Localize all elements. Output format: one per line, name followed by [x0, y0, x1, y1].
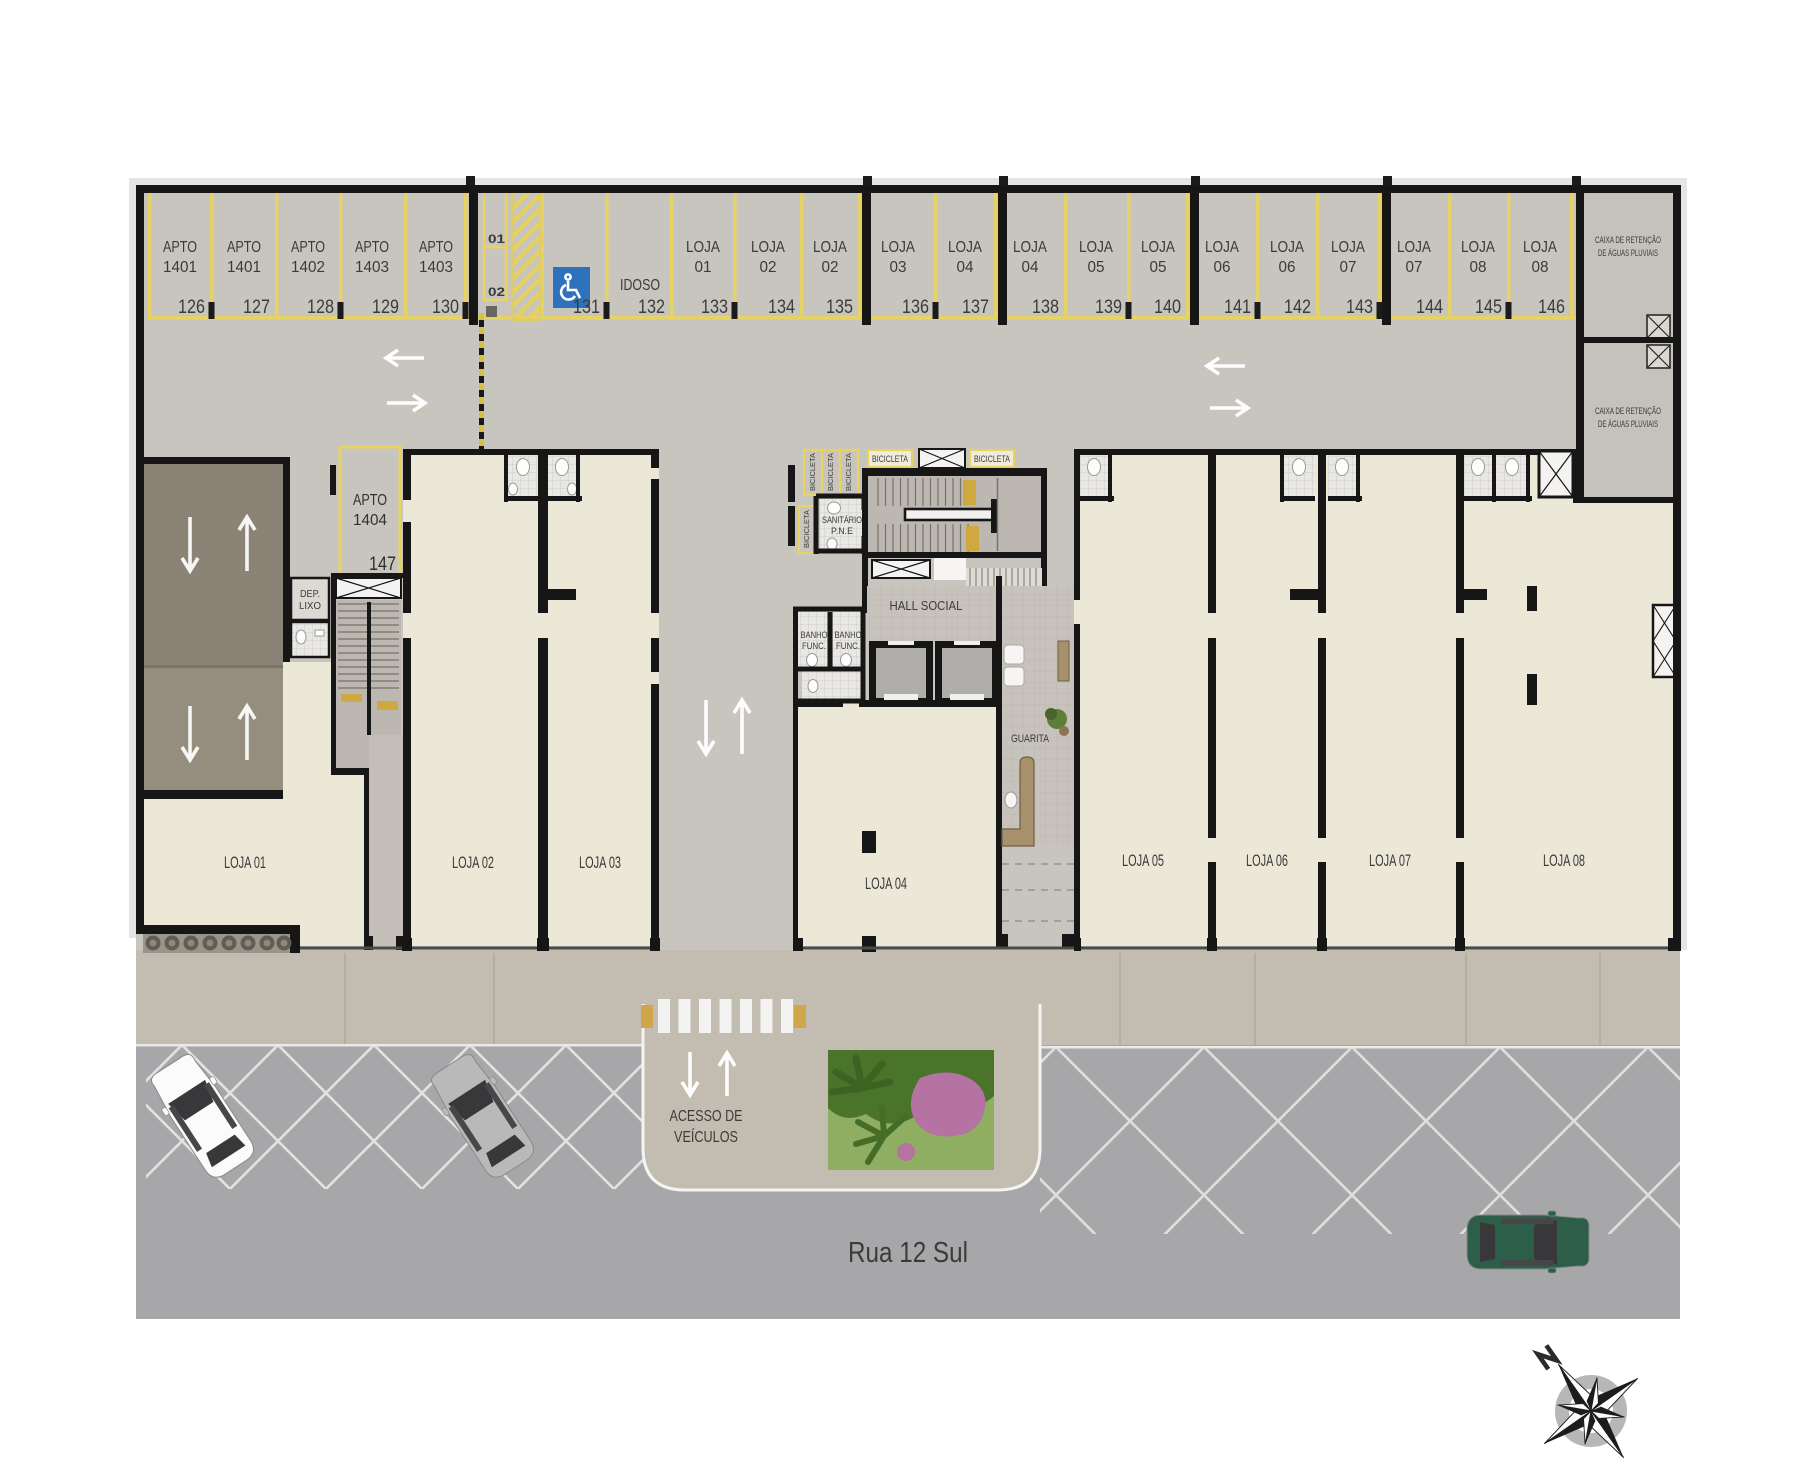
- svg-text:138: 138: [1032, 297, 1059, 318]
- svg-text:134: 134: [768, 297, 795, 318]
- svg-text:BICICLETA: BICICLETA: [872, 454, 908, 464]
- svg-text:127: 127: [243, 297, 270, 318]
- svg-text:05: 05: [1088, 259, 1105, 276]
- svg-text:LOJA 01: LOJA 01: [224, 853, 266, 872]
- svg-text:01: 01: [488, 234, 506, 246]
- svg-text:LOJA: LOJA: [1013, 239, 1047, 256]
- svg-text:01: 01: [695, 259, 712, 276]
- svg-text:APTO: APTO: [227, 239, 261, 256]
- svg-text:145: 145: [1475, 297, 1502, 318]
- svg-text:BANHO: BANHO: [801, 630, 828, 641]
- svg-text:05: 05: [1150, 259, 1167, 276]
- svg-text:APTO: APTO: [291, 239, 325, 256]
- svg-text:132: 132: [638, 297, 665, 318]
- svg-text:FUNC.: FUNC.: [802, 641, 826, 652]
- svg-text:140: 140: [1154, 297, 1181, 318]
- svg-text:1403: 1403: [355, 259, 389, 276]
- svg-text:144: 144: [1416, 297, 1443, 318]
- svg-text:07: 07: [1340, 259, 1357, 276]
- svg-text:1403: 1403: [419, 259, 453, 276]
- svg-text:DE ÁGUAS PLUVIAIS: DE ÁGUAS PLUVIAIS: [1598, 248, 1658, 259]
- svg-text:LOJA 07: LOJA 07: [1369, 851, 1411, 870]
- svg-text:08: 08: [1470, 259, 1487, 276]
- svg-text:141: 141: [1224, 297, 1251, 318]
- svg-text:142: 142: [1284, 297, 1311, 318]
- svg-text:BICICLETA: BICICLETA: [826, 453, 835, 491]
- svg-text:LOJA: LOJA: [813, 239, 847, 256]
- svg-text:APTO: APTO: [419, 239, 453, 256]
- svg-text:1402: 1402: [291, 259, 325, 276]
- svg-text:BICICLETA: BICICLETA: [808, 453, 817, 491]
- svg-text:07: 07: [1406, 259, 1423, 276]
- svg-text:APTO: APTO: [355, 239, 389, 256]
- svg-text:128: 128: [307, 297, 334, 318]
- svg-text:VEÍCULOS: VEÍCULOS: [674, 1129, 738, 1146]
- svg-text:139: 139: [1095, 297, 1122, 318]
- svg-text:02: 02: [822, 259, 839, 276]
- svg-text:LIXO: LIXO: [299, 601, 321, 612]
- svg-text:CAIXA DE RETENÇÃO: CAIXA DE RETENÇÃO: [1595, 406, 1661, 417]
- svg-text:08: 08: [1532, 259, 1549, 276]
- svg-text:130: 130: [432, 297, 459, 318]
- svg-text:BICICLETA: BICICLETA: [802, 510, 811, 548]
- svg-text:DE ÁGUAS PLUVIAIS: DE ÁGUAS PLUVIAIS: [1598, 419, 1658, 430]
- svg-text:LOJA: LOJA: [1205, 239, 1239, 256]
- svg-text:1401: 1401: [163, 259, 197, 276]
- svg-text:147: 147: [369, 554, 396, 575]
- svg-text:BANHO: BANHO: [835, 630, 862, 641]
- svg-text:137: 137: [962, 297, 989, 318]
- svg-text:LOJA: LOJA: [881, 239, 915, 256]
- svg-text:126: 126: [178, 297, 205, 318]
- svg-text:LOJA: LOJA: [948, 239, 982, 256]
- svg-text:P.N.E: P.N.E: [831, 526, 853, 537]
- svg-text:1404: 1404: [353, 512, 387, 529]
- svg-text:LOJA: LOJA: [686, 239, 720, 256]
- svg-text:APTO: APTO: [353, 492, 387, 509]
- svg-text:135: 135: [826, 297, 853, 318]
- svg-text:02: 02: [488, 287, 505, 299]
- svg-text:LOJA: LOJA: [1331, 239, 1365, 256]
- svg-text:LOJA 03: LOJA 03: [579, 853, 621, 872]
- svg-text:131: 131: [573, 297, 600, 318]
- svg-text:146: 146: [1538, 297, 1565, 318]
- svg-text:143: 143: [1346, 297, 1373, 318]
- svg-text:LOJA 04: LOJA 04: [865, 874, 907, 893]
- svg-text:04: 04: [1022, 259, 1039, 276]
- svg-text:136: 136: [902, 297, 929, 318]
- svg-text:DEP.: DEP.: [300, 589, 320, 600]
- svg-text:APTO: APTO: [163, 239, 197, 256]
- svg-text:03: 03: [890, 259, 907, 276]
- svg-text:IDOSO: IDOSO: [620, 277, 660, 294]
- svg-text:133: 133: [701, 297, 728, 318]
- svg-text:LOJA: LOJA: [1141, 239, 1175, 256]
- svg-text:LOJA: LOJA: [1461, 239, 1495, 256]
- svg-text:LOJA 02: LOJA 02: [452, 853, 494, 872]
- svg-text:02: 02: [760, 259, 777, 276]
- svg-text:1401: 1401: [227, 259, 261, 276]
- svg-text:LOJA: LOJA: [1270, 239, 1304, 256]
- svg-text:BICICLETA: BICICLETA: [974, 454, 1010, 464]
- svg-text:SANITÁRIO: SANITÁRIO: [822, 515, 862, 526]
- svg-text:LOJA: LOJA: [1523, 239, 1557, 256]
- svg-text:129: 129: [372, 297, 399, 318]
- svg-text:BICICLETA: BICICLETA: [844, 453, 853, 491]
- svg-text:FUNC.: FUNC.: [836, 641, 860, 652]
- svg-text:LOJA: LOJA: [1079, 239, 1113, 256]
- svg-text:CAIXA DE RETENÇÃO: CAIXA DE RETENÇÃO: [1595, 235, 1661, 246]
- svg-text:LOJA 08: LOJA 08: [1543, 851, 1585, 870]
- svg-text:LOJA: LOJA: [751, 239, 785, 256]
- svg-text:LOJA 06: LOJA 06: [1246, 851, 1288, 870]
- svg-text:04: 04: [957, 259, 974, 276]
- svg-text:HALL SOCIAL: HALL SOCIAL: [890, 599, 963, 613]
- svg-text:Rua 12 Sul: Rua 12 Sul: [848, 1237, 968, 1269]
- svg-text:GUARITA: GUARITA: [1011, 733, 1050, 745]
- svg-text:06: 06: [1214, 259, 1231, 276]
- svg-text:LOJA: LOJA: [1397, 239, 1431, 256]
- svg-text:06: 06: [1279, 259, 1296, 276]
- svg-text:LOJA 05: LOJA 05: [1122, 851, 1164, 870]
- svg-text:ACESSO DE: ACESSO DE: [670, 1108, 743, 1125]
